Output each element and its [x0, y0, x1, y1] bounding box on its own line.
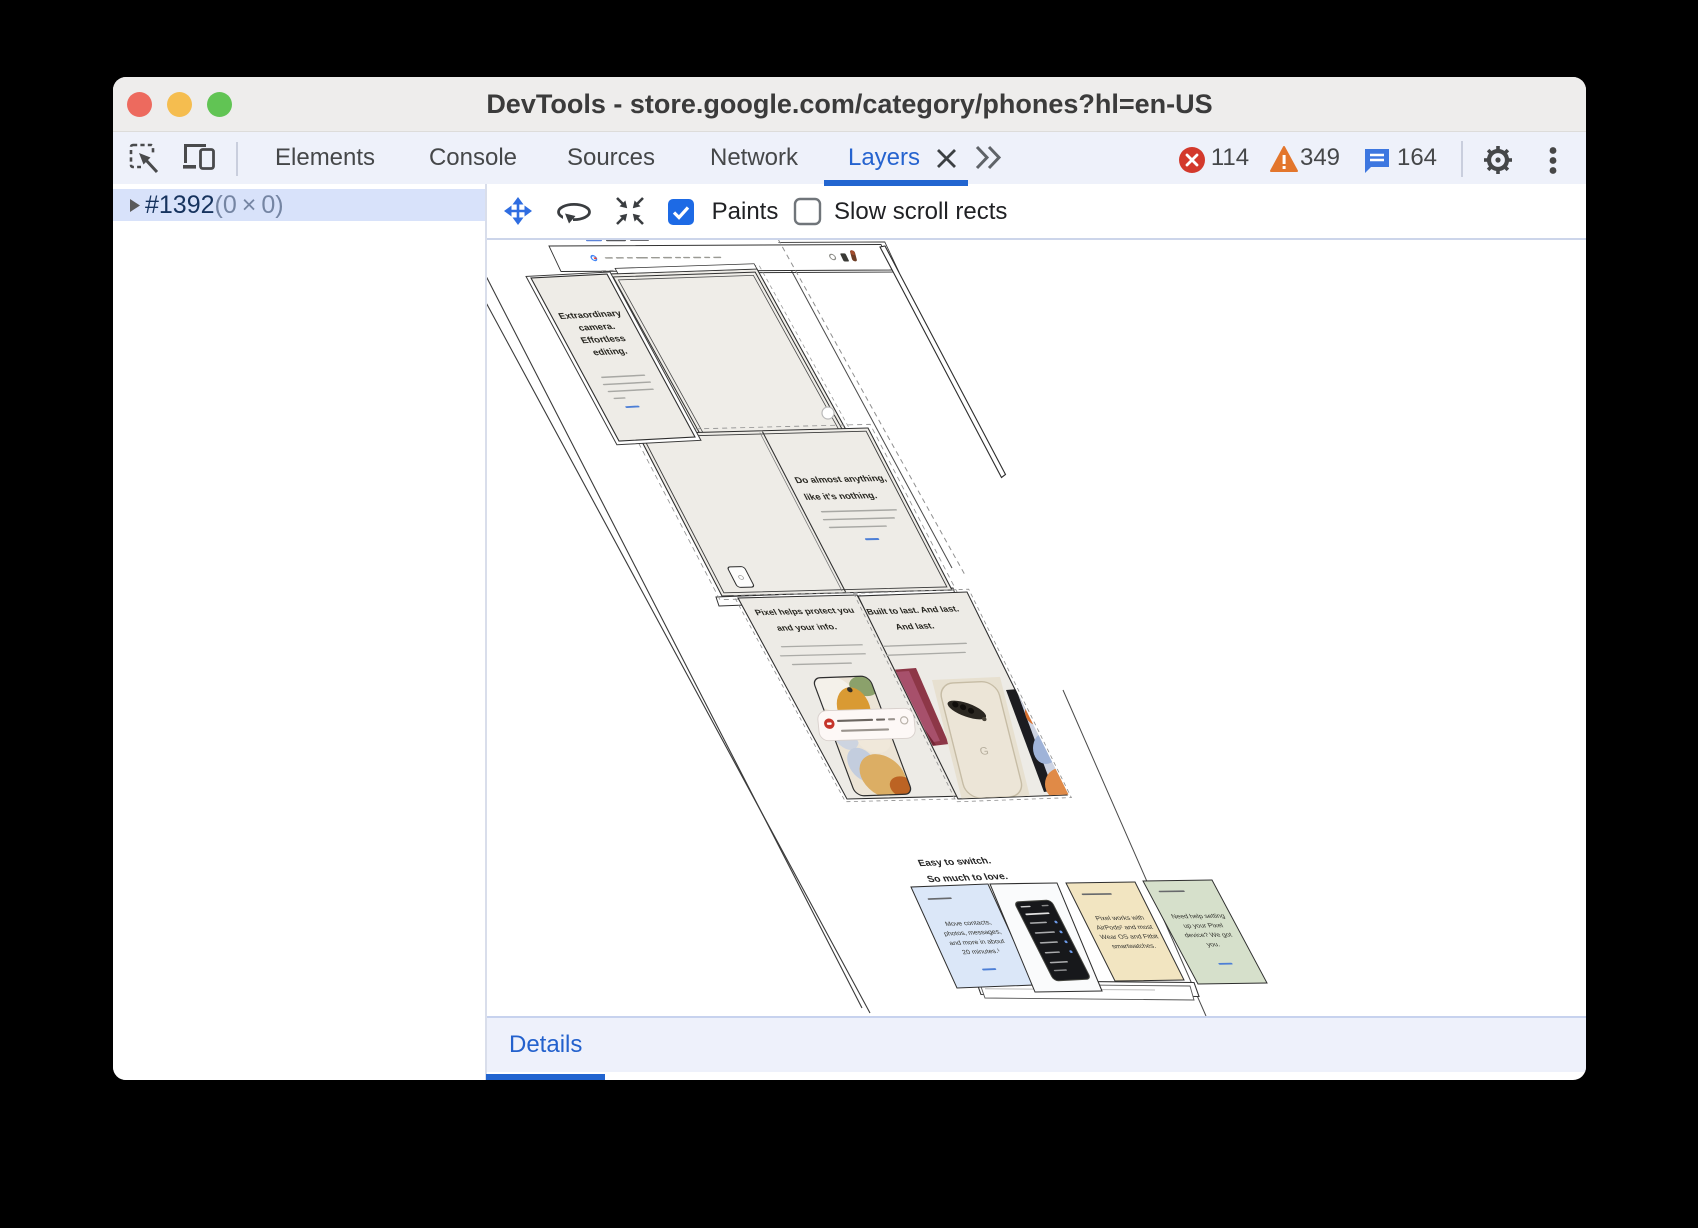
svg-text:camera.: camera. [576, 322, 617, 334]
svg-text:Wear OS and Fitbit: Wear OS and Fitbit [1099, 934, 1160, 941]
svg-text:smartwatches.: smartwatches. [1111, 943, 1158, 950]
svg-text:Need help setting: Need help setting [1170, 913, 1226, 920]
svg-text:device? We got: device? We got [1183, 932, 1233, 939]
svg-text:Easy to switch.: Easy to switch. [916, 856, 993, 869]
svg-text:up your Pixel: up your Pixel [1182, 923, 1225, 930]
svg-text:like it's nothing.: like it's nothing. [802, 491, 879, 503]
svg-text:editing.: editing. [591, 346, 630, 357]
svg-text:Pixel works with: Pixel works with [1094, 915, 1146, 922]
svg-text:AirPods² and most: AirPods² and most [1095, 924, 1154, 931]
svg-text:So much to love.: So much to love. [925, 872, 1010, 885]
svg-text:and your info.: and your info. [774, 622, 838, 632]
svg-text:And last.: And last. [893, 621, 935, 631]
